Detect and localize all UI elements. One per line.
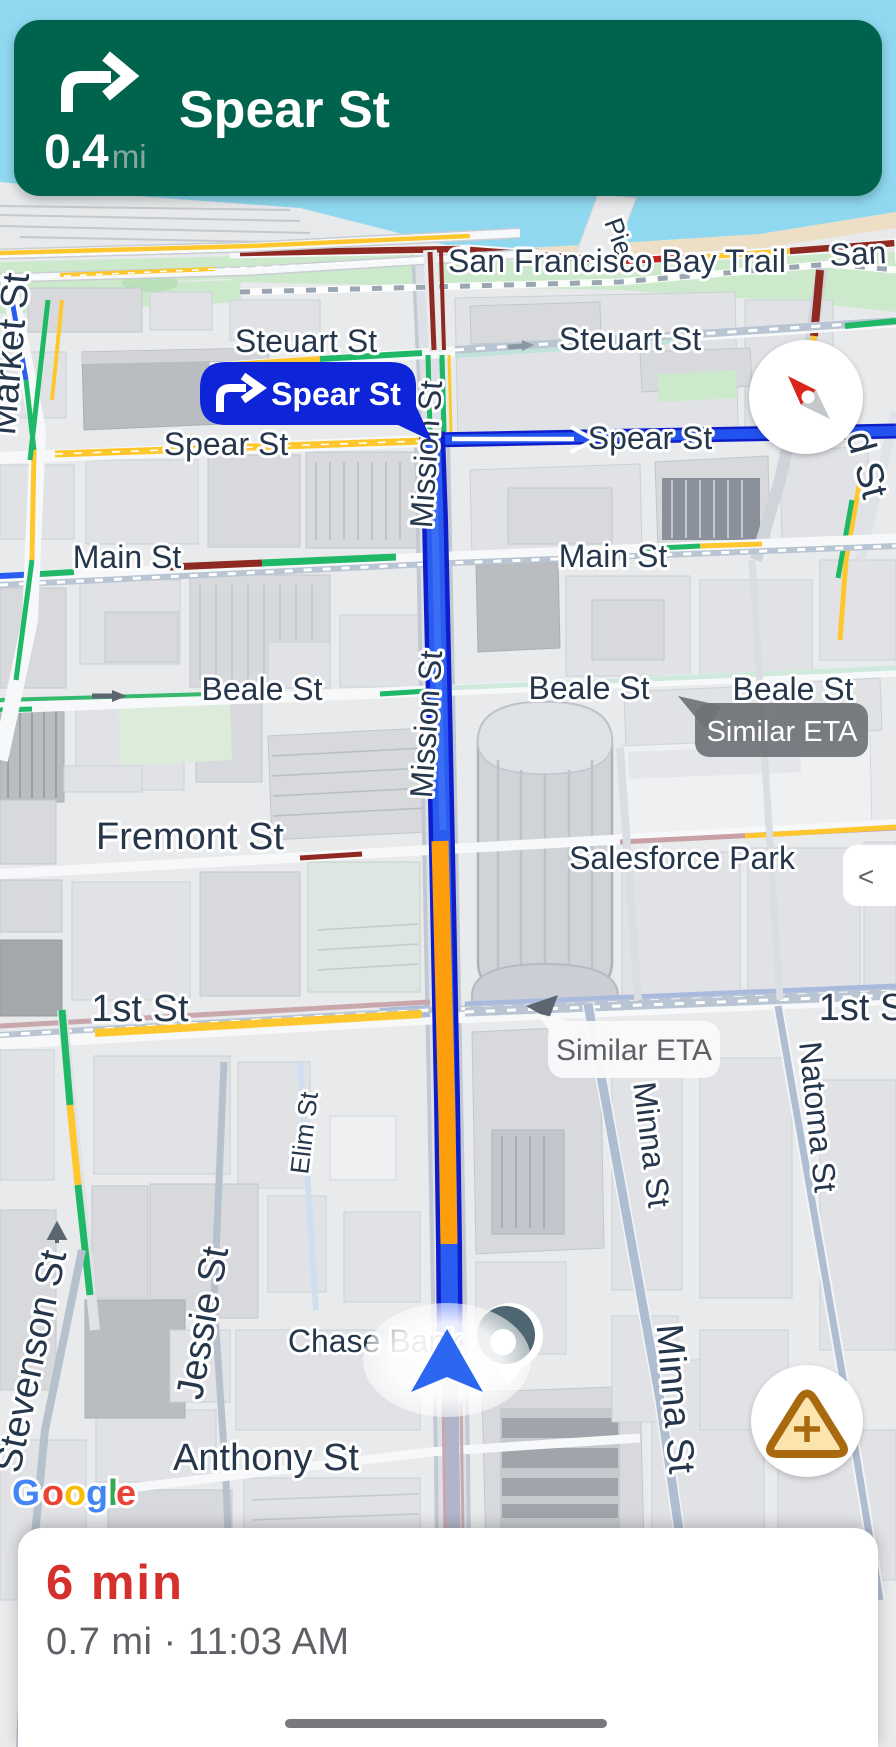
svg-text:San Francisco Bay Trail: San Francisco Bay Trail: [448, 243, 786, 279]
svg-text:Spear St: Spear St: [271, 376, 401, 412]
svg-text:g: g: [86, 1472, 108, 1513]
svg-text:1st S: 1st S: [819, 987, 896, 1029]
svg-text:Fremont St: Fremont St: [96, 816, 284, 858]
svg-text:Main St: Main St: [559, 538, 668, 574]
svg-text:e: e: [116, 1472, 136, 1513]
svg-text:Spear St: Spear St: [164, 426, 289, 462]
svg-text:San Fran: San Fran: [828, 230, 896, 273]
svg-text:Steuart St: Steuart St: [559, 321, 701, 357]
svg-text:o: o: [42, 1472, 64, 1513]
svg-text:o: o: [64, 1472, 86, 1513]
svg-text:Similar ETA: Similar ETA: [556, 1034, 712, 1067]
svg-text:1st St: 1st St: [91, 988, 189, 1030]
svg-text:Beale St: Beale St: [202, 671, 323, 707]
svg-text:Beale St: Beale St: [733, 671, 854, 707]
svg-text:Spear St: Spear St: [588, 420, 713, 456]
svg-text:Salesforce Park: Salesforce Park: [569, 840, 796, 876]
svg-text:Steuart St: Steuart St: [235, 323, 377, 359]
svg-text:Similar ETA: Similar ETA: [707, 716, 859, 748]
svg-text:Anthony St: Anthony St: [173, 1437, 359, 1479]
svg-text:Main St: Main St: [73, 539, 182, 575]
svg-text:<: <: [858, 861, 874, 892]
svg-text:G: G: [12, 1472, 40, 1513]
svg-text:Beale St: Beale St: [529, 670, 650, 706]
